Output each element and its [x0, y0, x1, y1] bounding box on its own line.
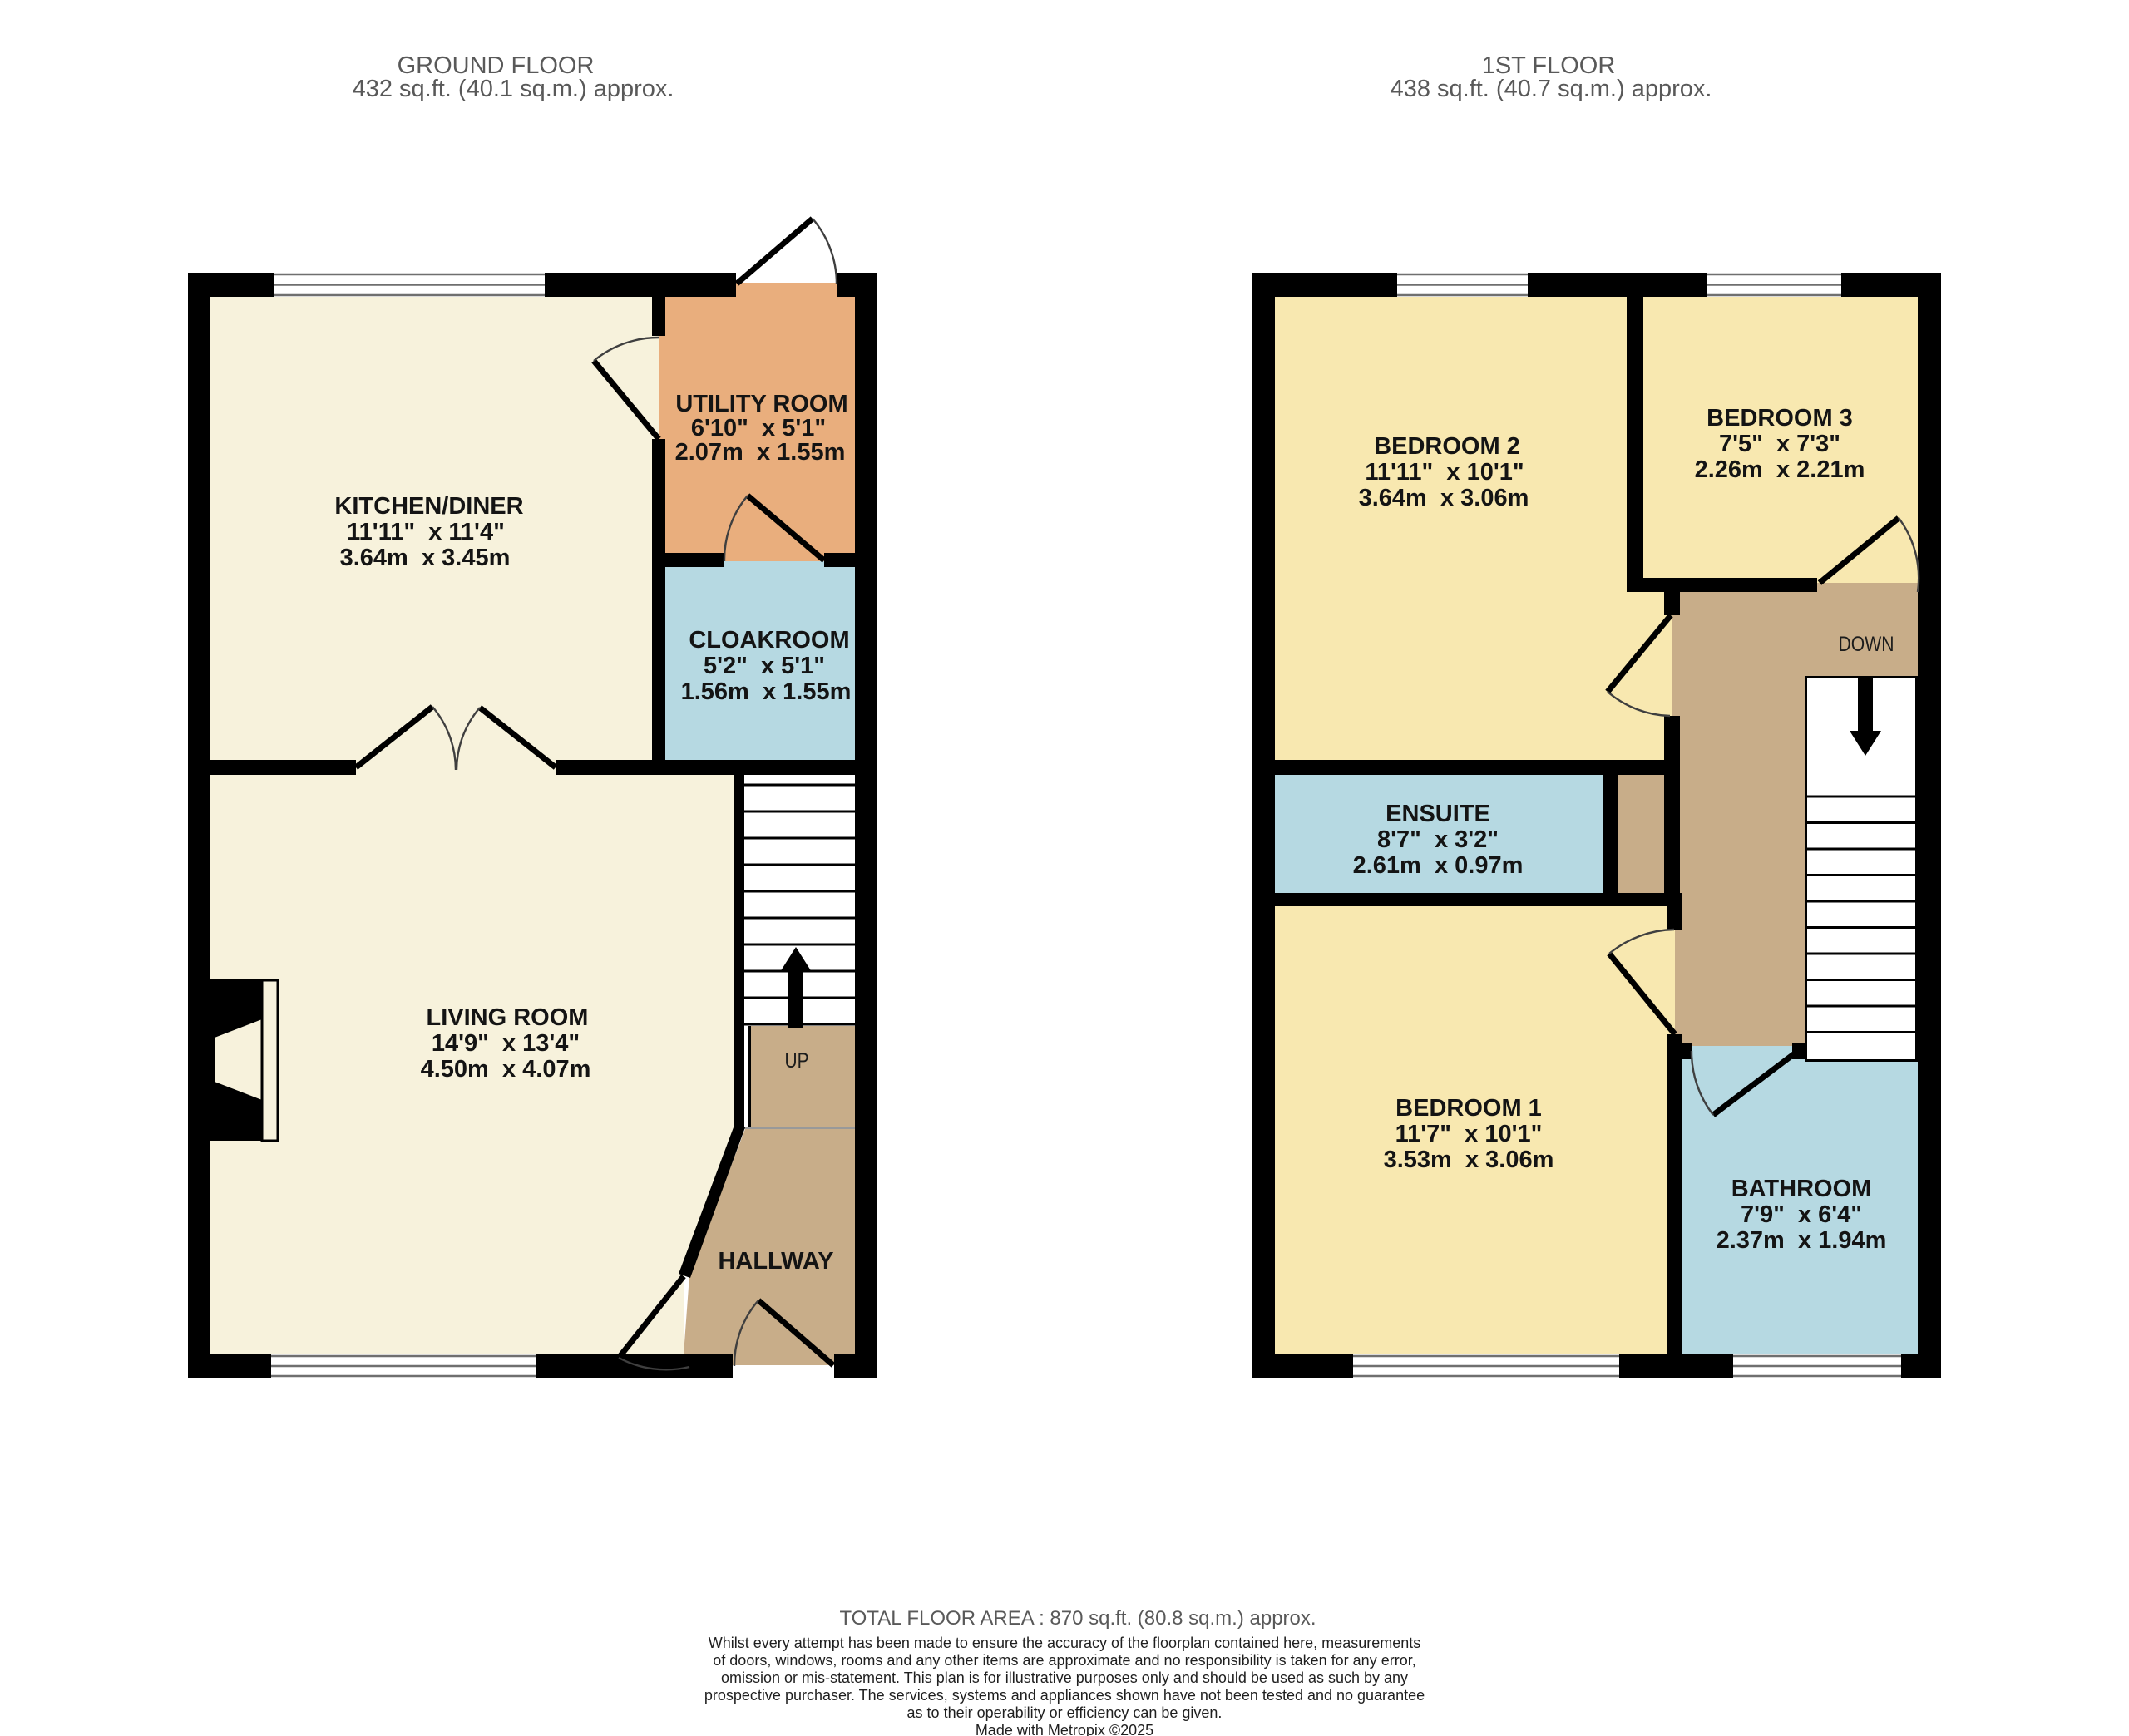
svg-text:438 sq.ft. (40.7 sq.m.) approx: 438 sq.ft. (40.7 sq.m.) approx. — [1391, 76, 1712, 102]
svg-text:6'10" x 5'1": 6'10" x 5'1" — [691, 415, 826, 441]
svg-text:ENSUITE: ENSUITE — [1386, 801, 1490, 827]
svg-text:LIVING ROOM: LIVING ROOM — [427, 1004, 589, 1031]
svg-text:UP: UP — [785, 1049, 809, 1073]
svg-text:3.53m x 3.06m: 3.53m x 3.06m — [1384, 1147, 1554, 1173]
svg-text:11'7" x 10'1": 11'7" x 10'1" — [1395, 1121, 1543, 1147]
svg-text:as to their operability or eff: as to their operability or efficiency ca… — [907, 1704, 1223, 1721]
svg-text:4.50m x 4.07m: 4.50m x 4.07m — [421, 1056, 591, 1083]
svg-text:2.07m x 1.55m: 2.07m x 1.55m — [675, 439, 846, 466]
svg-text:prospective purchaser. The ser: prospective purchaser. The services, sys… — [704, 1687, 1425, 1704]
svg-text:KITCHEN/DINER: KITCHEN/DINER — [334, 493, 523, 520]
svg-text:3.64m x 3.45m: 3.64m x 3.45m — [340, 545, 511, 571]
svg-text:DOWN: DOWN — [1839, 633, 1894, 656]
svg-text:Whilst every attempt has been: Whilst every attempt has been made to en… — [709, 1635, 1420, 1651]
svg-text:TOTAL FLOOR AREA : 870 sq.ft.: TOTAL FLOOR AREA : 870 sq.ft. (80.8 sq.m… — [839, 1607, 1316, 1630]
svg-text:432 sq.ft. (40.1 sq.m.) approx: 432 sq.ft. (40.1 sq.m.) approx. — [353, 76, 674, 102]
svg-text:3.64m x 3.06m: 3.64m x 3.06m — [1359, 485, 1529, 511]
svg-text:of doors, windows, rooms and a: of doors, windows, rooms and any other i… — [713, 1652, 1415, 1669]
svg-text:Made with Metropix ©2025: Made with Metropix ©2025 — [976, 1722, 1153, 1736]
svg-text:HALLWAY: HALLWAY — [718, 1248, 833, 1275]
svg-text:8'7" x 3'2": 8'7" x 3'2" — [1377, 826, 1499, 853]
svg-text:11'11" x 10'1": 11'11" x 10'1" — [1365, 459, 1524, 486]
svg-text:2.61m x 0.97m: 2.61m x 0.97m — [1353, 852, 1524, 879]
svg-text:BEDROOM 3: BEDROOM 3 — [1707, 405, 1853, 432]
svg-text:7'9" x 6'4": 7'9" x 6'4" — [1741, 1201, 1862, 1228]
svg-text:2.37m x 1.94m: 2.37m x 1.94m — [1717, 1227, 1887, 1254]
svg-text:BEDROOM 2: BEDROOM 2 — [1374, 433, 1520, 460]
svg-text:5'2" x 5'1": 5'2" x 5'1" — [704, 653, 825, 679]
svg-text:7'5" x 7'3": 7'5" x 7'3" — [1719, 431, 1840, 457]
svg-text:11'11" x 11'4": 11'11" x 11'4" — [347, 519, 505, 545]
svg-text:BATHROOM: BATHROOM — [1731, 1176, 1872, 1202]
svg-text:14'9" x 13'4": 14'9" x 13'4" — [432, 1030, 580, 1057]
svg-text:1.56m x 1.55m: 1.56m x 1.55m — [681, 678, 852, 705]
svg-text:BEDROOM 1: BEDROOM 1 — [1395, 1095, 1542, 1122]
svg-text:omission or mis-statement. Thi: omission or mis-statement. This plan is … — [721, 1669, 1408, 1686]
svg-text:2.26m x 2.21m: 2.26m x 2.21m — [1695, 456, 1865, 483]
svg-text:UTILITY ROOM: UTILITY ROOM — [675, 391, 847, 417]
svg-text:CLOAKROOM: CLOAKROOM — [689, 627, 849, 653]
